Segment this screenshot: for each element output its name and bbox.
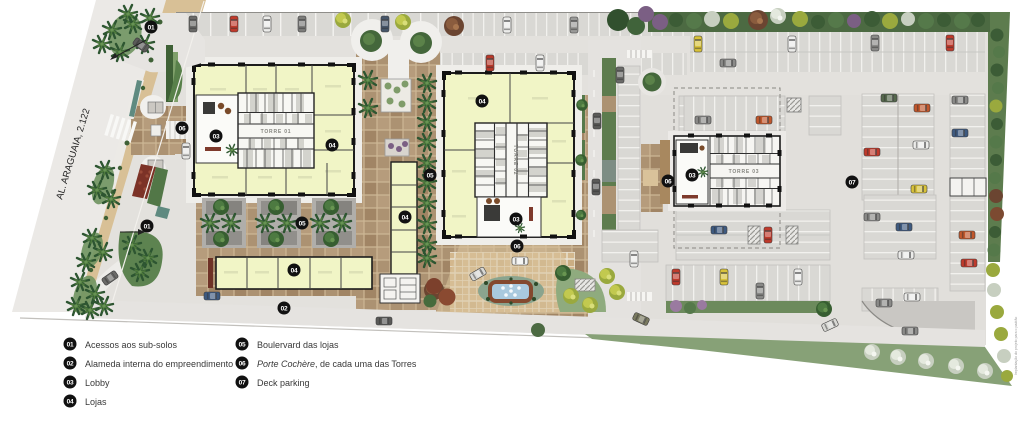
svg-text:TORRE 02: TORRE 02 — [512, 145, 518, 176]
svg-text:02: 02 — [67, 361, 74, 368]
svg-text:03: 03 — [513, 217, 520, 224]
svg-text:Boulervard das lojas: Boulervard das lojas — [257, 340, 339, 350]
svg-text:03: 03 — [67, 380, 74, 387]
svg-text:Implantação do projeto para o: Implantação do projeto para o padrão — [1014, 317, 1018, 375]
svg-text:07: 07 — [239, 380, 246, 387]
svg-text:06: 06 — [514, 244, 521, 251]
svg-text:02: 02 — [281, 306, 288, 313]
svg-text:05: 05 — [427, 173, 434, 180]
svg-text:TORRE 03: TORRE 03 — [729, 169, 760, 175]
svg-text:Lojas: Lojas — [85, 397, 107, 407]
svg-text:Acessos aos sub-solos: Acessos aos sub-solos — [85, 340, 178, 350]
svg-text:05: 05 — [239, 342, 246, 349]
svg-text:03: 03 — [689, 173, 696, 180]
svg-text:04: 04 — [479, 99, 486, 106]
svg-text:04: 04 — [291, 268, 298, 275]
svg-text:05: 05 — [299, 221, 306, 228]
svg-text:04: 04 — [402, 215, 409, 222]
svg-text:01: 01 — [67, 342, 74, 349]
svg-text:01: 01 — [144, 224, 151, 231]
svg-text:Porte Cochère, de cada uma das: Porte Cochère, de cada uma das Torres — [257, 359, 417, 369]
svg-text:06: 06 — [665, 179, 672, 186]
svg-text:Deck parking: Deck parking — [257, 378, 310, 388]
svg-text:06: 06 — [239, 361, 246, 368]
svg-text:Lobby: Lobby — [85, 378, 110, 388]
svg-text:04: 04 — [329, 143, 336, 150]
svg-text:01: 01 — [148, 25, 155, 32]
svg-text:03: 03 — [213, 134, 220, 141]
svg-text:TORRE 01: TORRE 01 — [261, 129, 292, 135]
svg-text:06: 06 — [179, 126, 186, 133]
svg-text:07: 07 — [849, 180, 856, 187]
svg-text:Alameda interna do empreendime: Alameda interna do empreendimento — [85, 359, 233, 369]
svg-text:04: 04 — [67, 399, 74, 406]
